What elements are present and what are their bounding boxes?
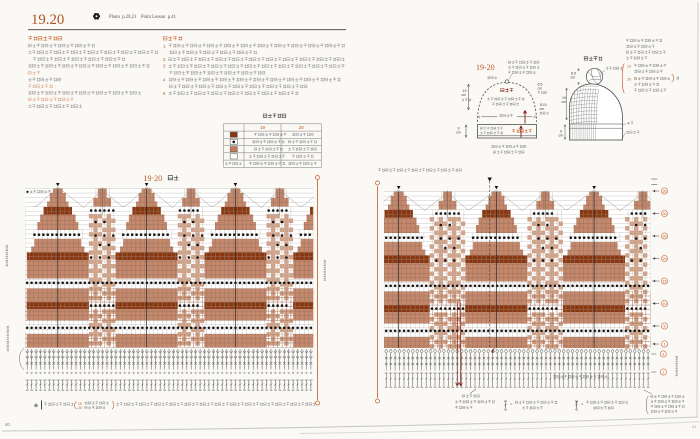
svg-text:19: 19 (260, 125, 266, 130)
svg-text:cm: cm (540, 107, 545, 111)
svg-text:4: 4 (628, 122, 630, 126)
svg-text:19·20: 19·20 (144, 174, 163, 183)
svg-text:20: 20 (299, 125, 305, 130)
svg-text:10: 10 (662, 302, 666, 306)
svg-text:35: 35 (662, 189, 666, 193)
svg-text:cm: cm (562, 100, 567, 104)
svg-text:19: 19 (78, 402, 82, 406)
svg-text:40: 40 (5, 422, 10, 427)
svg-text:20: 20 (662, 257, 666, 261)
svg-text:19-20: 19-20 (476, 63, 495, 72)
svg-text:41: 41 (692, 424, 697, 429)
svg-text:20: 20 (627, 77, 631, 81)
svg-text:25: 25 (662, 234, 666, 238)
svg-text:20: 20 (78, 406, 82, 410)
svg-text:3: 3 (662, 352, 664, 356)
svg-text:19.20: 19.20 (31, 12, 64, 28)
svg-text:5: 5 (663, 324, 665, 328)
svg-text:cm: cm (456, 131, 461, 135)
svg-text:cm: cm (462, 93, 467, 97)
svg-text:1: 1 (663, 342, 665, 346)
svg-text:cm: cm (559, 134, 564, 138)
svg-text:30: 30 (662, 212, 666, 216)
svg-text:19: 19 (627, 64, 631, 68)
svg-text:Photo p.20,21 Point Lesson: Photo p.20,21 Point Lesson p.41 (109, 15, 177, 20)
svg-text:cm: cm (571, 76, 576, 80)
svg-text:1: 1 (662, 370, 664, 374)
svg-text:15: 15 (662, 279, 666, 283)
svg-text:cm: cm (538, 87, 543, 91)
